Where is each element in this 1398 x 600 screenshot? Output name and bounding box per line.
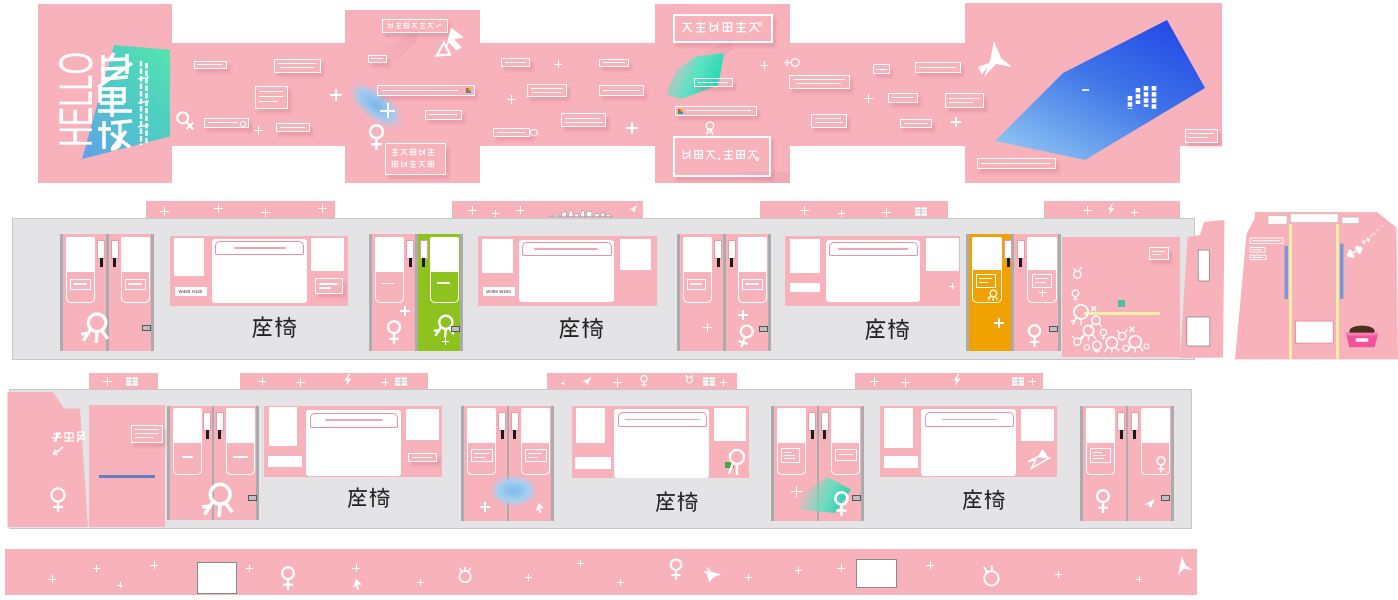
- svg-text:HELLO: HELLO: [49, 52, 102, 147]
